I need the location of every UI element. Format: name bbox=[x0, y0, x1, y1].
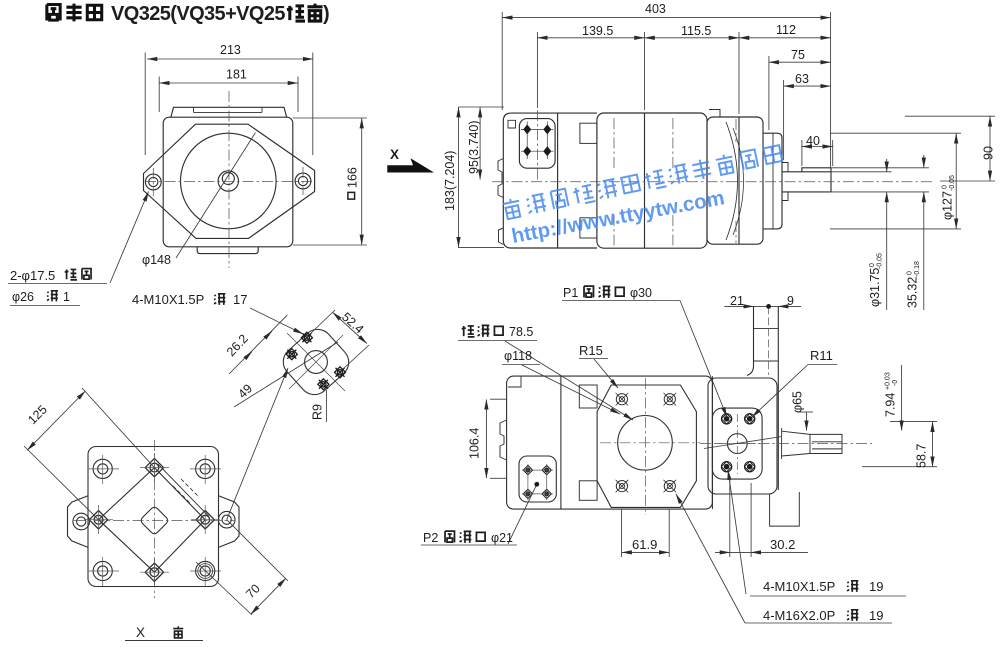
svg-text:49: 49 bbox=[235, 381, 255, 401]
svg-text:φ127: φ127 bbox=[941, 191, 955, 220]
svg-text:1: 1 bbox=[63, 290, 70, 304]
svg-text:112: 112 bbox=[776, 23, 796, 37]
svg-text:P2: P2 bbox=[423, 531, 438, 545]
svg-text:7.94: 7.94 bbox=[884, 393, 898, 417]
svg-text:R11: R11 bbox=[810, 348, 833, 363]
svg-text:61.9: 61.9 bbox=[632, 537, 657, 552]
svg-text:φ21: φ21 bbox=[491, 531, 513, 545]
svg-text:115.5: 115.5 bbox=[681, 24, 711, 38]
svg-text:58.7: 58.7 bbox=[915, 444, 929, 468]
svg-text:26.2: 26.2 bbox=[224, 332, 251, 359]
svg-text:70: 70 bbox=[243, 581, 263, 601]
svg-text:φ118: φ118 bbox=[504, 349, 532, 363]
svg-text:17: 17 bbox=[233, 292, 247, 307]
svg-text:0: 0 bbox=[869, 263, 876, 267]
svg-text:183(7.204): 183(7.204) bbox=[443, 151, 457, 211]
svg-text:40: 40 bbox=[806, 134, 820, 148]
svg-text:19: 19 bbox=[869, 579, 883, 594]
svg-text:4-M10X1.5P: 4-M10X1.5P bbox=[763, 579, 835, 594]
svg-text:403: 403 bbox=[645, 2, 666, 16]
svg-text:φ65: φ65 bbox=[791, 391, 805, 413]
svg-text:φ26: φ26 bbox=[12, 290, 34, 304]
svg-text:φ30: φ30 bbox=[630, 286, 652, 300]
svg-text:125: 125 bbox=[25, 402, 50, 427]
svg-text:35.32: 35.32 bbox=[906, 277, 920, 308]
svg-text:4-M10X1.5P: 4-M10X1.5P bbox=[132, 292, 204, 307]
svg-text:φ148: φ148 bbox=[142, 253, 171, 267]
svg-text:78.5: 78.5 bbox=[509, 325, 533, 339]
svg-text:106.4: 106.4 bbox=[468, 428, 482, 459]
svg-text:-0.18: -0.18 bbox=[914, 261, 921, 277]
svg-text:181: 181 bbox=[226, 68, 247, 82]
svg-text:213: 213 bbox=[220, 43, 241, 57]
svg-text:-0.05: -0.05 bbox=[949, 175, 956, 191]
svg-text:X: X bbox=[136, 625, 145, 640]
svg-text:R15: R15 bbox=[579, 343, 603, 358]
svg-text:2-φ17.5: 2-φ17.5 bbox=[10, 268, 55, 283]
svg-text:φ31.75: φ31.75 bbox=[868, 268, 882, 307]
svg-text:52.4: 52.4 bbox=[339, 310, 366, 337]
svg-text:-0: -0 bbox=[892, 380, 899, 386]
svg-text:R9: R9 bbox=[311, 404, 325, 420]
svg-text:0: 0 bbox=[907, 271, 914, 275]
svg-text:-0.05: -0.05 bbox=[877, 253, 884, 269]
svg-text:30.2: 30.2 bbox=[770, 537, 795, 552]
svg-text:63: 63 bbox=[795, 72, 809, 86]
svg-text:75: 75 bbox=[791, 48, 805, 62]
svg-text:90: 90 bbox=[982, 146, 996, 160]
svg-text:): ) bbox=[323, 3, 330, 25]
svg-text:139.5: 139.5 bbox=[582, 24, 613, 38]
svg-text:9: 9 bbox=[787, 294, 794, 308]
svg-text:21: 21 bbox=[730, 294, 744, 308]
svg-text:P1: P1 bbox=[563, 286, 578, 300]
svg-text:0: 0 bbox=[942, 185, 949, 189]
svg-text:95(3.740): 95(3.740) bbox=[467, 120, 481, 174]
svg-text:+0.03: +0.03 bbox=[885, 372, 892, 390]
svg-text:4-M16X2.0P: 4-M16X2.0P bbox=[763, 608, 835, 623]
svg-text:19: 19 bbox=[869, 608, 883, 623]
svg-text:166: 166 bbox=[346, 167, 360, 188]
svg-text:VQ325(VQ35+VQ25: VQ325(VQ35+VQ25 bbox=[111, 3, 285, 25]
svg-text:X: X bbox=[390, 147, 399, 162]
